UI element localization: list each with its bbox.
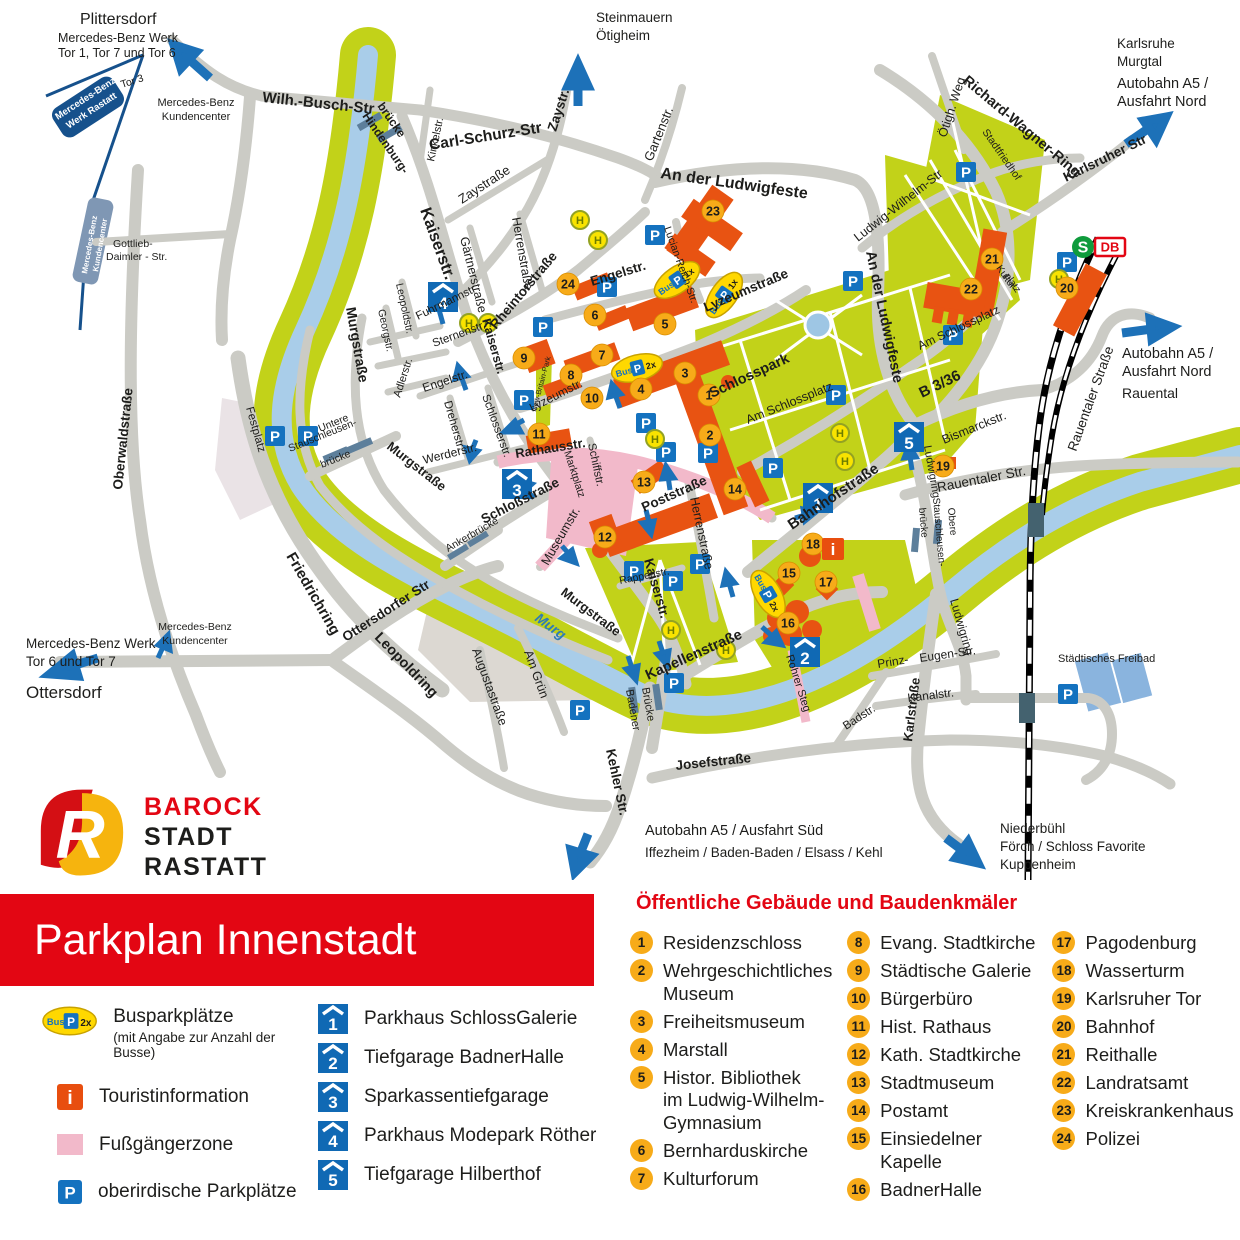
map-label: Mercedes-Benz Werk — [26, 636, 156, 651]
map-label: Förch / Schloss Favorite — [1000, 839, 1146, 854]
garage-list-item-5: 5 Tiefgarage Hilberthof — [318, 1160, 608, 1190]
map-label: Murgtal — [1117, 54, 1162, 69]
tourist-info-icon: i — [57, 1084, 83, 1110]
map-label: Karlsruhe — [1117, 36, 1175, 51]
poi-label: Stadtmuseum — [880, 1071, 994, 1095]
svg-text:P: P — [1063, 687, 1073, 704]
poi-label: Bernharduskirche — [663, 1139, 808, 1163]
map-label: Kuppenheim — [1000, 857, 1076, 872]
svg-text:21: 21 — [985, 253, 999, 267]
bus-stop-icon: H — [589, 231, 607, 249]
logo-line-barock: BAROCK — [144, 792, 267, 822]
poi-number-badge: 18 — [1052, 959, 1075, 982]
poi-number-badge: 11 — [847, 1015, 870, 1038]
poi-label: Freiheitsmuseum — [663, 1010, 805, 1034]
svg-text:H: H — [576, 215, 584, 227]
svg-text:S: S — [1078, 240, 1089, 257]
svg-text:18: 18 — [806, 538, 820, 552]
svg-text:5: 5 — [904, 434, 913, 453]
svg-text:3: 3 — [328, 1093, 337, 1112]
svg-text:5: 5 — [328, 1171, 337, 1190]
poi-label: BadnerHalle — [880, 1178, 982, 1202]
poi-list-item-19: 19Karlsruher Tor — [1052, 987, 1236, 1011]
poi-label: Reithalle — [1085, 1043, 1157, 1067]
svg-text:5: 5 — [662, 318, 669, 332]
map-label: Rauental — [1122, 385, 1178, 401]
surface-parking-icon: P — [664, 673, 684, 693]
poi-number-badge: 2 — [630, 959, 653, 982]
map-label: Autobahn A5 / Ausfahrt Süd — [645, 823, 823, 839]
svg-text:P: P — [669, 676, 679, 693]
legend-bus-sublabel: (mit Angabe zur Anzahl der Busse) — [113, 1030, 318, 1060]
poi-list-item-22: 22Landratsamt — [1052, 1071, 1236, 1095]
bus-parking-icon: Bus P 2x — [42, 1006, 97, 1036]
svg-text:P: P — [848, 274, 858, 291]
map-label: Autobahn A5 / — [1122, 346, 1214, 362]
svg-text:H: H — [841, 456, 849, 468]
db-icon: DB — [1095, 238, 1125, 256]
map-label: Kundencenter — [162, 635, 228, 647]
garage-list-item-2: 2 Tiefgarage BadnerHalle — [318, 1043, 608, 1073]
svg-text:Bus: Bus — [47, 1017, 65, 1027]
poi-list-item-20: 20Bahnhof — [1052, 1015, 1236, 1039]
map-label: Niederbühl — [1000, 821, 1065, 836]
garage-list-item-1: 1 Parkhaus SchlossGalerie — [318, 1004, 608, 1034]
legend-bus-row: Bus P 2x Busparkplätze (mit Angabe zur A… — [42, 1006, 318, 1060]
svg-text:R: R — [56, 797, 105, 873]
svg-text:H: H — [594, 235, 602, 247]
svg-text:H: H — [667, 625, 675, 637]
map-label: Ottersdorf — [26, 683, 102, 702]
svg-text:P: P — [641, 416, 651, 433]
garage-list-item-4: 4 Parkhaus Modepark Röther — [318, 1121, 608, 1151]
surface-parking-icon: P — [956, 162, 976, 182]
legend: Bus P 2x Busparkplätze (mit Angabe zur A… — [42, 1006, 318, 1228]
garage-label: Tiefgarage Hilberthof — [364, 1164, 541, 1186]
poi-label: Polizei — [1085, 1127, 1140, 1151]
poi-number-badge: 16 — [847, 1178, 870, 1201]
poi-label: Hist. Rathaus — [880, 1015, 991, 1039]
surface-parking-icon: P — [1058, 684, 1078, 704]
poi-number-badge: 14 — [847, 1099, 870, 1122]
poi-label: Kath. Stadtkirche — [880, 1043, 1021, 1067]
poi-number-badge: 1 — [630, 931, 653, 954]
map-label: Daimler - Str. — [106, 251, 167, 263]
surface-parking-icon: P — [533, 317, 553, 337]
garage-label: Sparkassentiefgarage — [364, 1086, 549, 1108]
svg-text:22: 22 — [964, 283, 978, 297]
pedestrian-zone-swatch — [57, 1134, 83, 1155]
poi-list-item-13: 13Stadtmuseum — [847, 1071, 1044, 1095]
poi-list-item-10: 10Bürgerbüro — [847, 987, 1044, 1011]
poi-column-3: 17Pagodenburg18Wasserturm19Karlsruher To… — [1052, 931, 1236, 1206]
legend-zone-label: Fußgängerzone — [99, 1134, 233, 1156]
poi-marker-13: 13 — [633, 471, 655, 493]
map-label: Obere — [945, 507, 958, 536]
map-label: Iffezheim / Baden-Baden / Elsass / Kehl — [645, 845, 883, 860]
svg-text:H: H — [651, 434, 659, 446]
poi-marker-4: 4 — [630, 378, 652, 400]
legend-parking-row: P oberirdische Parkplätze — [42, 1180, 318, 1204]
svg-text:i: i — [67, 1088, 72, 1109]
poi-marker-17: 17 — [815, 571, 837, 593]
poi-list-item-6: 6Bernharduskirche — [630, 1139, 839, 1163]
map-label: Mercedes-Benz — [157, 97, 234, 109]
svg-text:P: P — [961, 165, 971, 182]
poi-marker-9: 9 — [513, 347, 535, 369]
poi-label: Residenzschloss — [663, 931, 802, 955]
page-title: Parkplan Innenstadt — [0, 894, 594, 986]
svg-text:P: P — [575, 703, 585, 720]
bus-stop-icon: H — [831, 424, 849, 442]
map-label: Ötigheim — [596, 28, 650, 43]
poi-marker-23: 23 — [702, 200, 724, 222]
surface-parking-icon: P — [58, 1180, 82, 1204]
poi-label: Wehrgeschichtliches Museum — [663, 959, 832, 1005]
poi-number-badge: 22 — [1052, 1071, 1075, 1094]
svg-text:P: P — [538, 320, 548, 337]
poi-list-item-23: 23Kreiskrankenhaus — [1052, 1099, 1236, 1123]
poi-number-badge: 21 — [1052, 1043, 1075, 1066]
svg-text:24: 24 — [561, 278, 575, 292]
svg-text:H: H — [836, 428, 844, 440]
poi-list-item-8: 8Evang. Stadtkirche — [847, 931, 1044, 955]
svg-text:P: P — [1062, 255, 1072, 272]
surface-parking-icon: P — [843, 271, 863, 291]
map-label: Murgstraße — [343, 306, 372, 384]
garage-icon: 3 — [318, 1082, 348, 1112]
svg-text:1: 1 — [328, 1015, 337, 1034]
poi-list-item-3: 3Freiheitsmuseum — [630, 1010, 839, 1034]
map-label: Tor 6 und Tor 7 — [26, 654, 116, 669]
surface-parking-icon: P — [265, 426, 285, 446]
poi-legend-heading: Öffentliche Gebäude und Baudenkmäler — [636, 892, 1236, 915]
svg-text:10: 10 — [585, 392, 599, 406]
poi-number-badge: 17 — [1052, 931, 1075, 954]
poi-marker-14: 14 — [724, 478, 746, 500]
poi-label: Pagodenburg — [1085, 931, 1196, 955]
svg-text:P: P — [661, 445, 671, 462]
poi-number-badge: 7 — [630, 1167, 653, 1190]
logo-line-rastatt: RASTATT — [144, 852, 267, 882]
svg-text:23: 23 — [706, 205, 720, 219]
map-label: Plittersdorf — [80, 11, 157, 28]
poi-marker-3: 3 — [674, 362, 696, 384]
poi-list-item-11: 11Hist. Rathaus — [847, 1015, 1044, 1039]
poi-number-badge: 6 — [630, 1139, 653, 1162]
poi-list-item-15: 15Einsiedelner Kapelle — [847, 1127, 1044, 1173]
poi-list-item-5: 5Histor. Bibliothek im Ludwig-Wilhelm- G… — [630, 1066, 839, 1135]
poi-label: Kreiskrankenhaus — [1085, 1099, 1233, 1123]
svg-text:15: 15 — [782, 567, 796, 581]
svg-text:4: 4 — [638, 383, 645, 397]
poi-label: Marstall — [663, 1038, 728, 1062]
poi-label: Bahnhof — [1085, 1015, 1154, 1039]
poi-number-badge: 4 — [630, 1038, 653, 1061]
svg-text:16: 16 — [781, 617, 795, 631]
poi-list-item-17: 17Pagodenburg — [1052, 931, 1236, 955]
svg-text:9: 9 — [521, 352, 528, 366]
poi-marker-18: 18 — [802, 533, 824, 555]
poi-number-badge: 19 — [1052, 987, 1075, 1010]
garage-label: Tiefgarage BadnerHalle — [364, 1047, 564, 1069]
garage-list-item-3: 3 Sparkassentiefgarage — [318, 1082, 608, 1112]
svg-text:14: 14 — [728, 483, 742, 497]
poi-label: Einsiedelner Kapelle — [880, 1127, 1044, 1173]
svg-text:3: 3 — [682, 367, 689, 381]
poi-number-badge: 12 — [847, 1043, 870, 1066]
map-label: Steinmauern — [596, 10, 673, 25]
map-label: Zaystr. — [545, 87, 573, 133]
map-label: Ausfahrt Nord — [1122, 364, 1211, 380]
legend-info-label: Touristinformation — [99, 1086, 249, 1108]
poi-marker-2: 2 — [699, 424, 721, 446]
poi-number-badge: 20 — [1052, 1015, 1075, 1038]
legend-info-row: i Touristinformation — [42, 1084, 318, 1110]
poi-marker-6: 6 — [584, 304, 606, 326]
garage-icon: 5 — [318, 1160, 348, 1190]
poi-list-item-4: 4Marstall — [630, 1038, 839, 1062]
logo-line-stadt: STADT — [144, 822, 267, 852]
bus-stop-icon: H — [836, 452, 854, 470]
svg-text:P: P — [650, 228, 660, 245]
poi-columns: 1Residenzschloss2Wehrgeschichtliches Mus… — [630, 931, 1236, 1206]
svg-text:P: P — [768, 461, 778, 478]
title-banner: Parkplan Innenstadt — [0, 894, 594, 986]
svg-text:i: i — [831, 540, 836, 559]
city-map: PPPPPPPPPPPPPPPPPPPPPHHHHHHHHHHBusP1xBus… — [0, 0, 1240, 880]
poi-label: Städtische Galerie — [880, 959, 1031, 983]
map-label: Engelstr. — [588, 258, 647, 289]
garage-marker-5: 5 — [894, 422, 924, 453]
svg-text:P: P — [703, 446, 713, 463]
poi-label: Bürgerbüro — [880, 987, 973, 1011]
poi-marker-5: 5 — [654, 313, 676, 335]
poi-list-item-21: 21Reithalle — [1052, 1043, 1236, 1067]
poi-marker-16: 16 — [777, 612, 799, 634]
poi-list-item-18: 18Wasserturm — [1052, 959, 1236, 983]
poi-number-badge: 15 — [847, 1127, 870, 1150]
poi-list-item-24: 24Polizei — [1052, 1127, 1236, 1151]
svg-text:2: 2 — [707, 429, 714, 443]
surface-parking-icon: P — [763, 458, 783, 478]
poi-marker-10: 10 — [581, 387, 603, 409]
surface-parking-icon: P — [1057, 252, 1077, 272]
poi-label: Kulturforum — [663, 1167, 759, 1191]
map-label: Mercedes-Benz — [158, 621, 232, 633]
poi-label: Wasserturm — [1085, 959, 1184, 983]
poi-number-badge: 8 — [847, 931, 870, 954]
bus-stop-icon: H — [646, 430, 664, 448]
svg-text:6: 6 — [592, 309, 599, 323]
map-label: Tor 1, Tor 7 und Tor 6 — [58, 46, 176, 60]
svg-text:DB: DB — [1101, 240, 1120, 255]
svg-text:P: P — [67, 1015, 75, 1029]
garage-label: Parkhaus SchlossGalerie — [364, 1008, 577, 1030]
surface-parking-icon: P — [570, 700, 590, 720]
svg-text:11: 11 — [532, 428, 545, 442]
svg-text:2x: 2x — [80, 1018, 91, 1029]
poi-number-badge: 10 — [847, 987, 870, 1010]
poi-marker-15: 15 — [778, 562, 800, 584]
map-label: Städtisches Freibad — [1058, 653, 1155, 665]
poi-marker-7: 7 — [591, 344, 613, 366]
legend-zone-row: Fußgängerzone — [42, 1134, 318, 1156]
poi-list-item-9: 9Städtische Galerie — [847, 959, 1044, 983]
garage-icon: 1 — [318, 1004, 348, 1034]
poi-marker-22: 22 — [960, 278, 982, 300]
poi-number-badge: 9 — [847, 959, 870, 982]
svg-text:P: P — [270, 429, 280, 446]
poi-label: Landratsamt — [1085, 1071, 1188, 1095]
svg-text:P: P — [64, 1183, 75, 1202]
map-label: Mercedes-Benz Werk — [58, 31, 179, 45]
barock-stadt-rastatt-logo: R BAROCK STADT RASTATT — [36, 786, 267, 882]
poi-label: Postamt — [880, 1099, 948, 1123]
poi-list-item-7: 7Kulturforum — [630, 1167, 839, 1191]
poi-legend: Öffentliche Gebäude und Baudenkmäler 1Re… — [630, 892, 1236, 1206]
logo-wordmark: BAROCK STADT RASTATT — [144, 786, 267, 882]
garage-label: Parkhaus Modepark Röther — [364, 1125, 596, 1147]
legend-bus-label: Busparkplätze — [113, 1006, 318, 1028]
svg-text:2: 2 — [328, 1054, 337, 1073]
legend-parking-label: oberirdische Parkplätze — [98, 1181, 297, 1203]
poi-number-badge: 13 — [847, 1071, 870, 1094]
svg-text:17: 17 — [819, 576, 833, 590]
rastatt-r-logo-icon: R — [36, 786, 128, 880]
parking-garage-list: 1 Parkhaus SchlossGalerie 2 Tiefgarage B… — [318, 1004, 608, 1199]
map-label: Gottlieb- — [113, 238, 153, 250]
poi-number-badge: 5 — [630, 1066, 653, 1089]
poi-list-item-16: 16BadnerHalle — [847, 1178, 1044, 1202]
svg-text:7: 7 — [599, 349, 606, 363]
poi-number-badge: 23 — [1052, 1099, 1075, 1122]
garage-icon: 2 — [318, 1043, 348, 1073]
poi-number-badge: 24 — [1052, 1127, 1075, 1150]
svg-text:12: 12 — [598, 531, 612, 545]
poi-marker-20: 20 — [1056, 277, 1078, 299]
svg-text:20: 20 — [1060, 282, 1074, 296]
poi-label: Evang. Stadtkirche — [880, 931, 1035, 955]
map-label: Kundencenter — [162, 111, 231, 123]
poi-marker-24: 24 — [557, 273, 579, 295]
poi-number-badge: 3 — [630, 1010, 653, 1033]
sbahn-icon: S — [1072, 236, 1094, 258]
poi-label: Histor. Bibliothek im Ludwig-Wilhelm- Gy… — [663, 1066, 824, 1135]
poi-list-item-14: 14Postamt — [847, 1099, 1044, 1123]
garage-icon: 4 — [318, 1121, 348, 1151]
svg-text:2: 2 — [800, 649, 809, 668]
poi-column-2: 8Evang. Stadtkirche9Städtische Galerie10… — [847, 931, 1044, 1206]
bus-stop-icon: H — [571, 211, 589, 229]
bus-stop-icon: H — [662, 621, 680, 639]
tourist-info-icon: i — [822, 538, 844, 560]
poi-label: Karlsruher Tor — [1085, 987, 1201, 1011]
map-label: Ausfahrt Nord — [1117, 94, 1206, 110]
svg-text:13: 13 — [637, 476, 651, 490]
poi-marker-12: 12 — [594, 526, 616, 548]
poi-list-item-1: 1Residenzschloss — [630, 931, 839, 955]
poi-list-item-12: 12Kath. Stadtkirche — [847, 1043, 1044, 1067]
svg-text:4: 4 — [328, 1132, 338, 1151]
poi-column-1: 1Residenzschloss2Wehrgeschichtliches Mus… — [630, 931, 839, 1206]
map-label: Autobahn A5 / — [1117, 76, 1209, 92]
poi-list-item-2: 2Wehrgeschichtliches Museum — [630, 959, 839, 1005]
